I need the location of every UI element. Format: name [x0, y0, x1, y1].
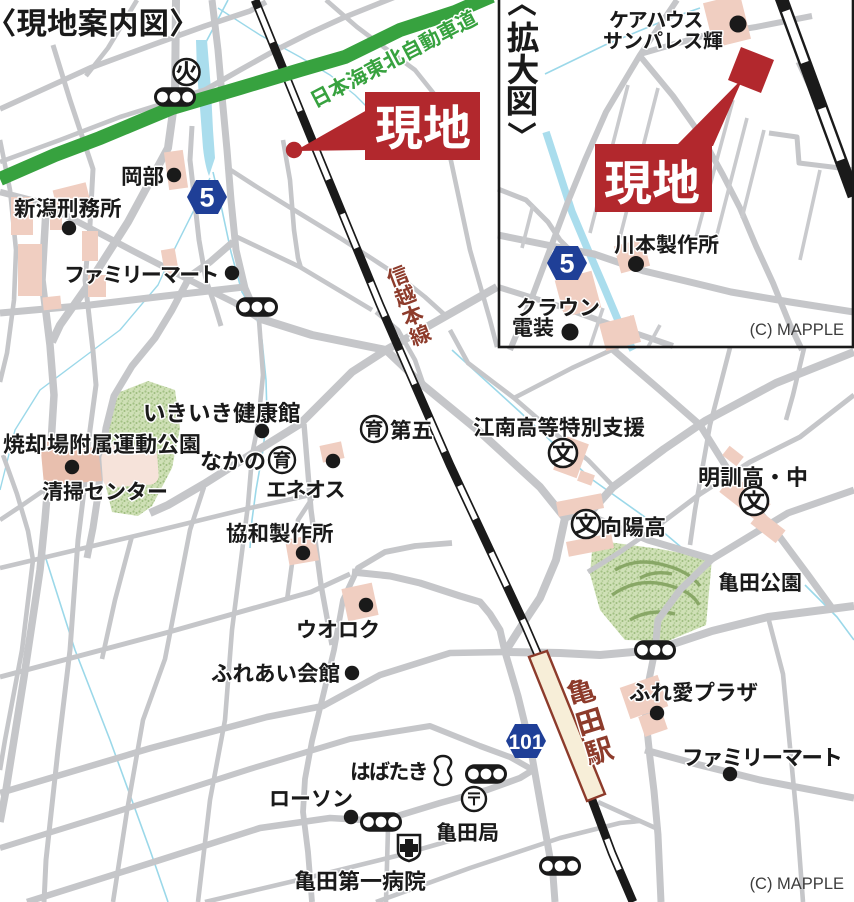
svg-text:5: 5 — [559, 249, 574, 279]
svg-text:101: 101 — [508, 731, 543, 754]
svg-text:(C) MAPPLE: (C) MAPPLE — [750, 875, 844, 893]
svg-text:(C) MAPPLE: (C) MAPPLE — [750, 321, 844, 339]
svg-text:5: 5 — [199, 183, 214, 213]
